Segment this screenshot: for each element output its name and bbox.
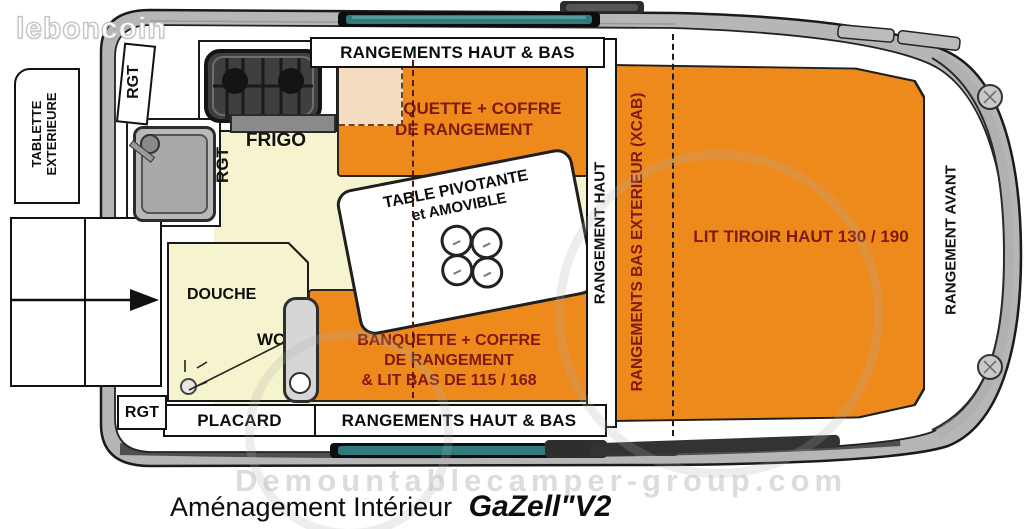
cup-icon bbox=[468, 254, 506, 292]
rangement-avant-label: RANGEMENT AVANT bbox=[943, 165, 960, 315]
faucet-icon bbox=[140, 134, 160, 154]
rgt-bottom-box: RGT bbox=[117, 395, 167, 430]
side-window-top-icon bbox=[338, 12, 600, 27]
frigo-label: FRIGO bbox=[246, 130, 306, 152]
banquette-corner-shelf bbox=[339, 64, 403, 126]
rgt-top-label: RGT bbox=[125, 65, 143, 99]
tablette-exterieure-label: TABLETTE EXTERIEURE bbox=[29, 92, 59, 175]
rangements-top-strip: RANGEMENTS HAUT & BAS bbox=[310, 37, 605, 68]
entry-door-diagram bbox=[10, 217, 162, 387]
stove-icon bbox=[203, 48, 323, 124]
watermark-circle bbox=[555, 150, 883, 478]
floorplan-canvas: leboncoin Demountablecamper-group.com TA… bbox=[0, 0, 1024, 529]
leboncoin-logo: leboncoin bbox=[16, 12, 167, 46]
rgt-kitchen-label: RGT bbox=[213, 147, 233, 183]
caption: Aménagement Intérieur GaZell"V2 bbox=[170, 490, 611, 524]
section-line-left bbox=[412, 60, 414, 398]
sink-icon bbox=[133, 126, 216, 222]
caption-prefix: Aménagement Intérieur bbox=[170, 492, 452, 522]
caption-model: GaZell"V2 bbox=[469, 490, 612, 523]
entry-arrow-icon bbox=[12, 219, 160, 385]
